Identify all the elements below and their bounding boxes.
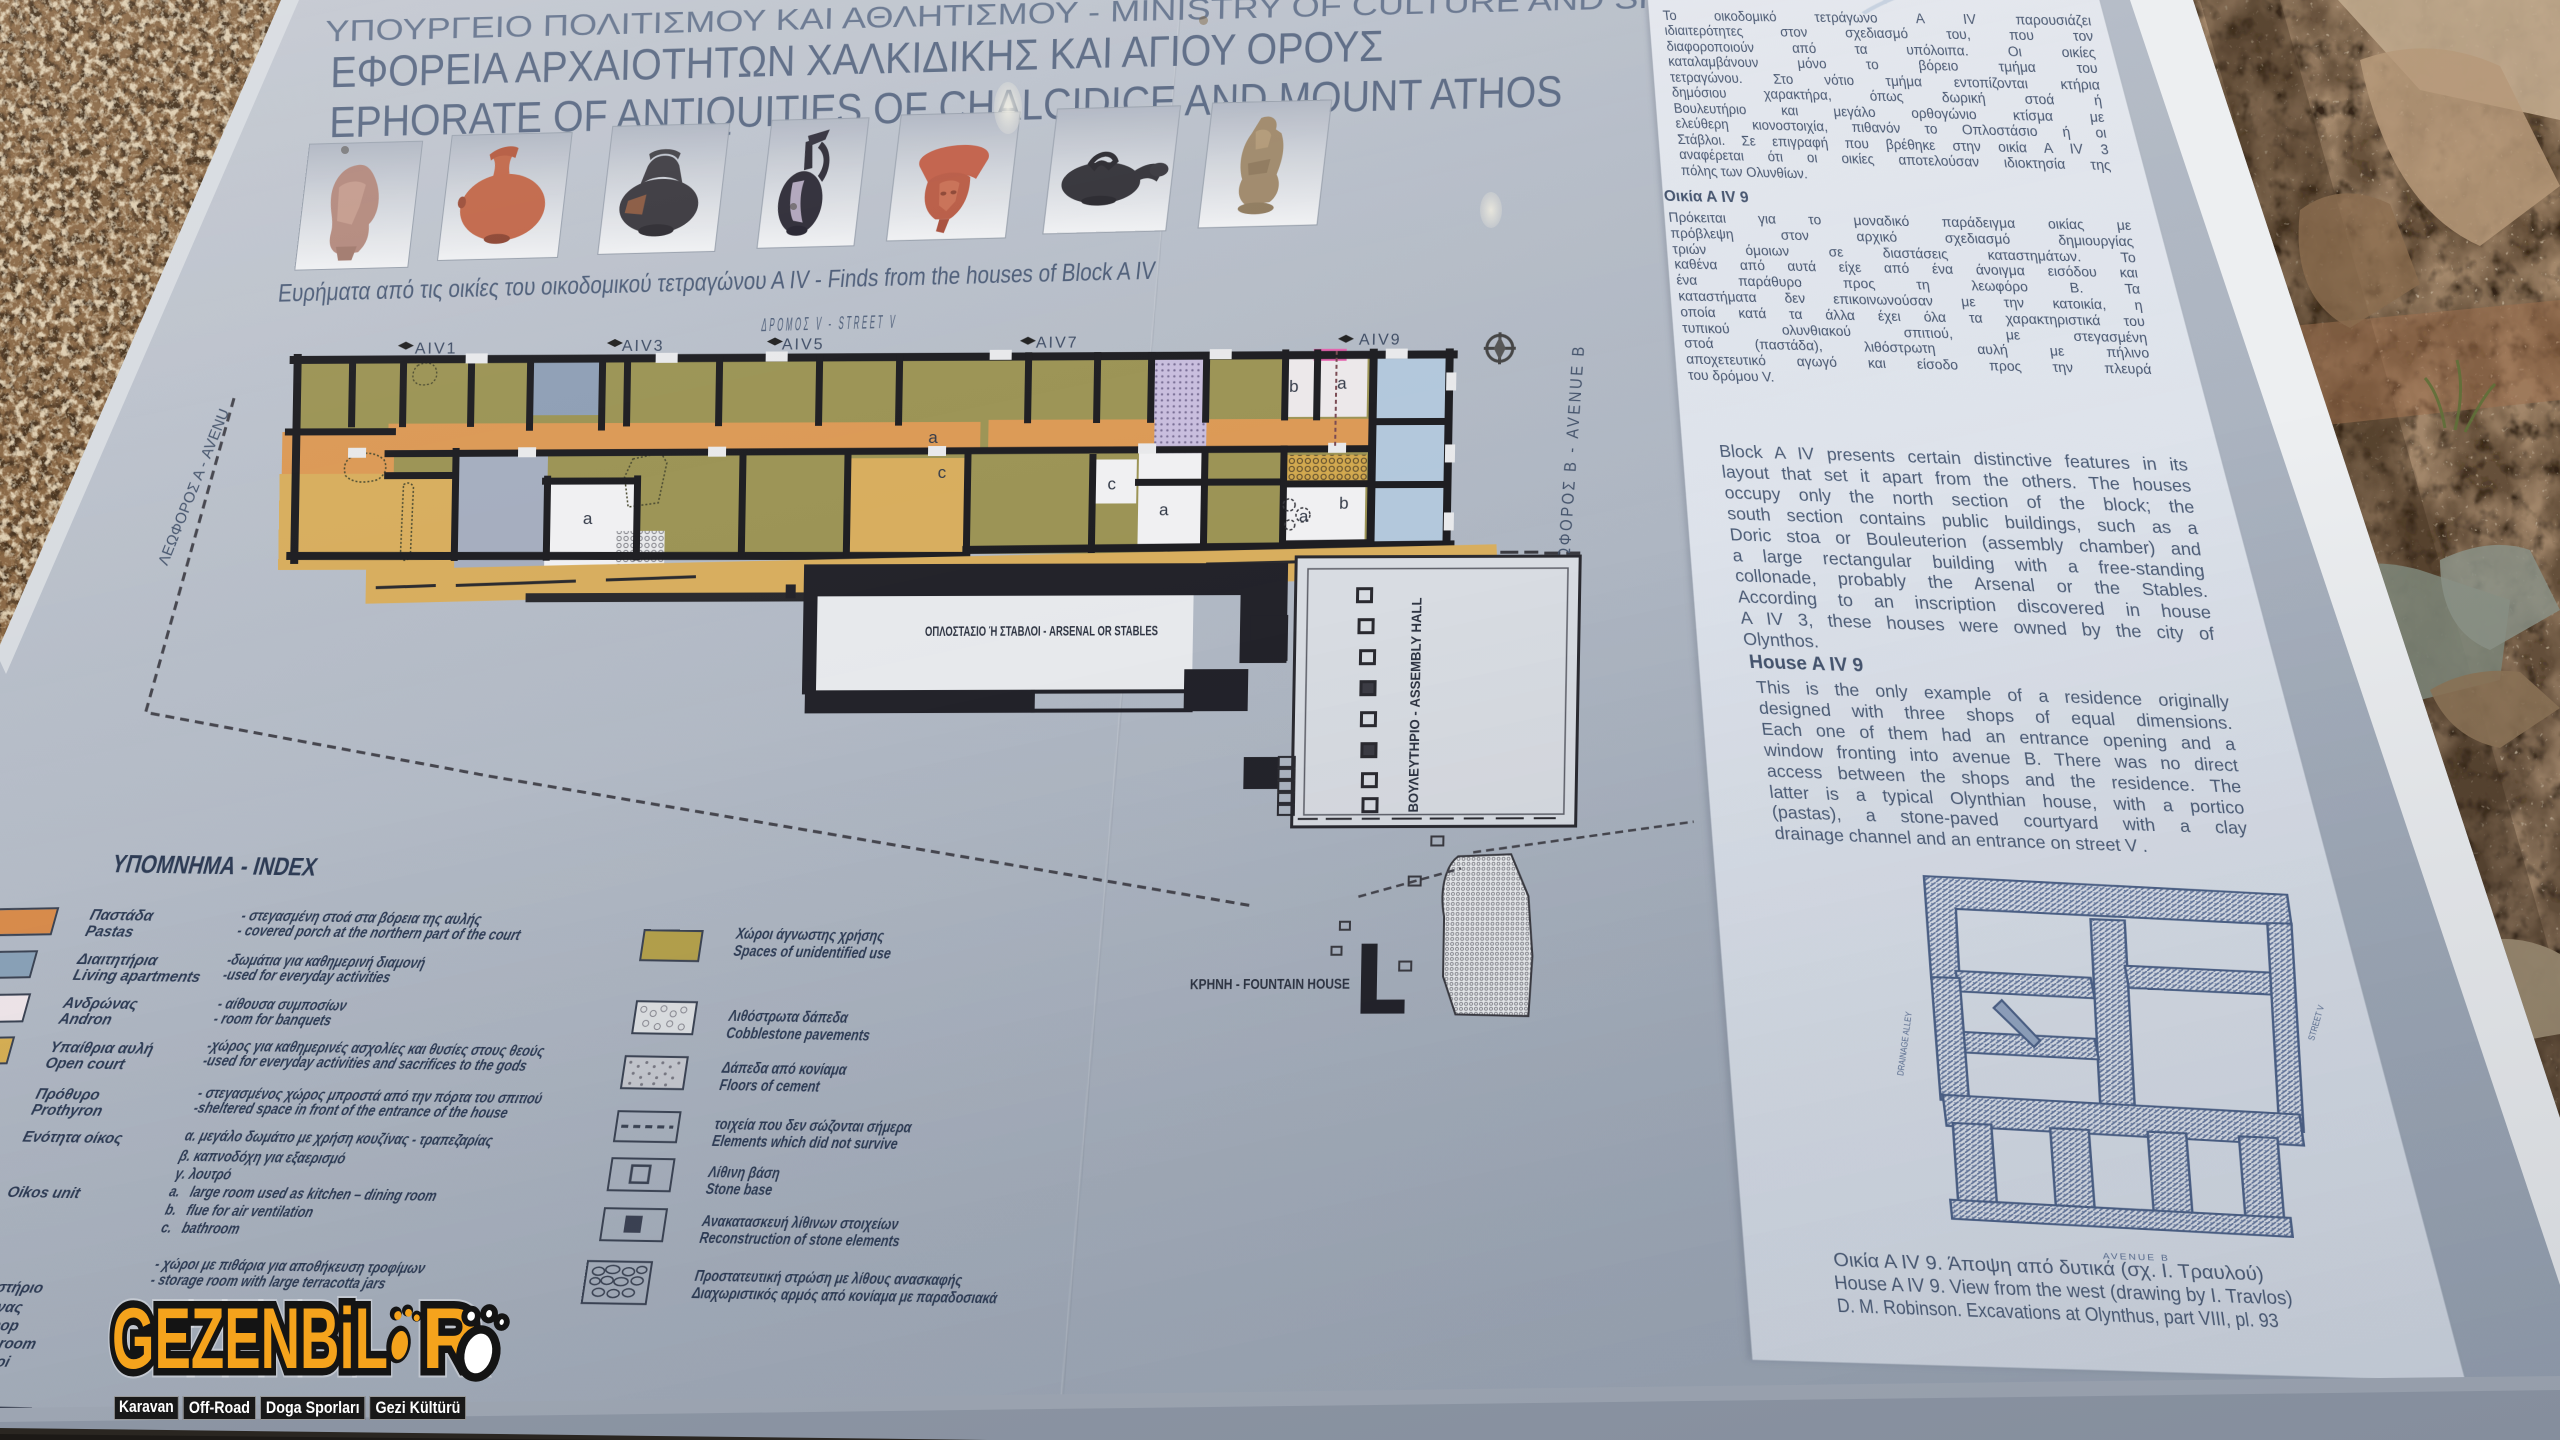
svg-text:c: c bbox=[1107, 474, 1116, 493]
svg-text:a: a bbox=[1299, 507, 1309, 526]
svg-text:a: a bbox=[1337, 374, 1347, 393]
svg-text:AIV5: AIV5 bbox=[782, 336, 825, 353]
svg-text:b: b bbox=[1289, 377, 1299, 396]
svg-text:AIV1: AIV1 bbox=[415, 340, 458, 357]
svg-text:AVENUE B: AVENUE B bbox=[2102, 1251, 2170, 1263]
svg-text:ΟΠΛΟΣΤΑΣΙΟ Ή ΣΤΑΒΛΟΙ - ARSENAL: ΟΠΛΟΣΤΑΣΙΟ Ή ΣΤΑΒΛΟΙ - ARSENAL OR STABLE… bbox=[925, 622, 1158, 639]
svg-text:a: a bbox=[928, 428, 938, 447]
svg-text:ΚΡΗΝΗ - FOUNTAIN HOUSE: ΚΡΗΝΗ - FOUNTAIN HOUSE bbox=[1190, 976, 1350, 993]
svg-text:AIV7: AIV7 bbox=[1036, 335, 1079, 352]
svg-text:ΔΡΟΜΟΣ V - STREET V: ΔΡΟΜΟΣ V - STREET V bbox=[761, 312, 899, 335]
svg-text:a: a bbox=[1159, 500, 1169, 519]
svg-text:DRAINAGE ALLEY: DRAINAGE ALLEY bbox=[1895, 1010, 1914, 1076]
svg-text:a: a bbox=[583, 509, 593, 528]
svg-text:c: c bbox=[938, 463, 947, 482]
svg-text:AIV9: AIV9 bbox=[1359, 332, 1402, 349]
svg-text:AIV3: AIV3 bbox=[622, 338, 665, 355]
svg-text:b: b bbox=[1339, 494, 1349, 513]
svg-text:Ευρήματα από τις οικίες του οι: Ευρήματα από τις οικίες του οικοδομικού … bbox=[277, 257, 1157, 308]
svg-text:GEZENBiL: GEZENBiL bbox=[112, 1291, 388, 1387]
svg-text:ΛΕΩΦΟΡΟΣ Β - AVENUE B: ΛΕΩΦΟΡΟΣ Β - AVENUE B bbox=[1553, 344, 1589, 585]
